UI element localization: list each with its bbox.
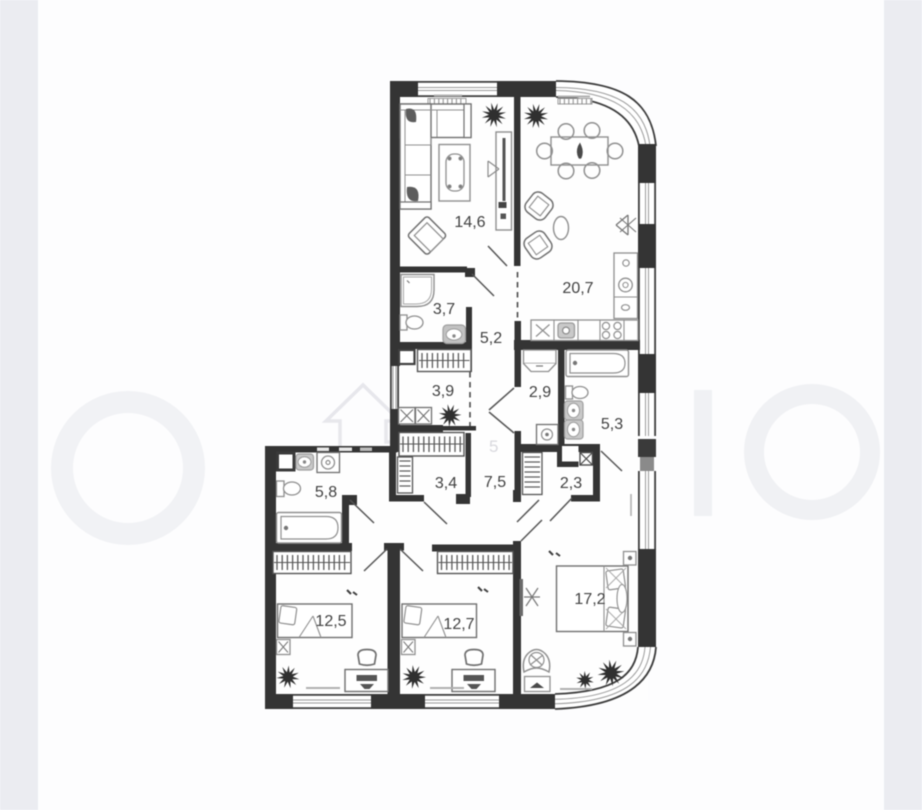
svg-text:5,8: 5,8: [315, 484, 337, 501]
svg-text:2,3: 2,3: [560, 475, 582, 492]
svg-text:3,9: 3,9: [432, 383, 454, 400]
svg-text:7,5: 7,5: [484, 474, 506, 491]
svg-text:5: 5: [489, 437, 498, 456]
svg-text:3,4: 3,4: [435, 475, 457, 492]
svg-text:12,7: 12,7: [443, 616, 474, 633]
svg-text:14,6: 14,6: [454, 214, 485, 231]
svg-text:17,2: 17,2: [574, 591, 605, 608]
svg-text:5,3: 5,3: [601, 416, 623, 433]
svg-text:12,5: 12,5: [315, 613, 346, 630]
svg-text:2,9: 2,9: [529, 384, 551, 401]
svg-text:5,2: 5,2: [480, 330, 502, 347]
svg-text:3,7: 3,7: [433, 301, 455, 318]
svg-text:20,7: 20,7: [562, 280, 593, 297]
